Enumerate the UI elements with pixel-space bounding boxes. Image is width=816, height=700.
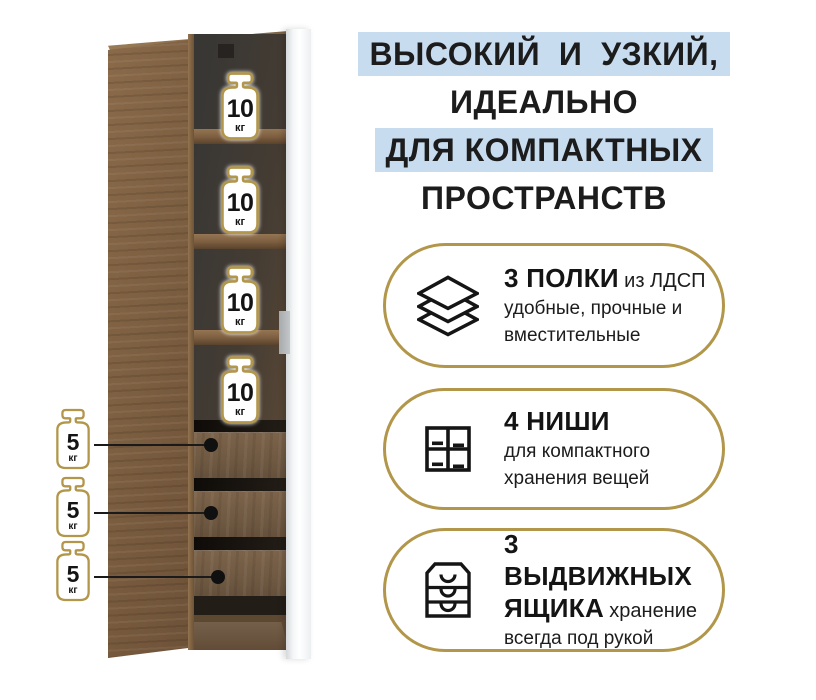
feature-note: из ЛДСП	[624, 270, 705, 292]
cabinet-base	[194, 622, 290, 650]
feature-description: всегда под рукой	[504, 628, 653, 649]
feature-card-shelves: 3 ПОЛКИ из ЛДСП удобные, прочные и вмест…	[383, 243, 725, 368]
badge-unit: кг	[212, 406, 268, 418]
drawer-gap	[194, 478, 290, 491]
shelf-load-badge: 10 кг	[212, 72, 268, 140]
headline-line: ДЛЯ КОМПАКТНЫХ	[356, 126, 732, 174]
callout-line	[94, 512, 212, 514]
drawer-front	[194, 550, 290, 597]
shelf	[194, 234, 290, 249]
feature-heading: 4 НИШИ	[504, 406, 610, 436]
badge-value: 10	[212, 189, 268, 218]
badge-value: 10	[212, 379, 268, 408]
niches-grid-icon	[416, 425, 480, 473]
headline-highlight: ВЫСОКИЙ И УЗКИЙ,	[358, 32, 729, 76]
callout-dot	[204, 438, 218, 452]
bottom-niche	[194, 596, 290, 622]
feature-text: 4 НИШИ для компактного хранения вещей	[504, 406, 706, 492]
badge-unit: кг	[212, 122, 268, 134]
badge-unit: кг	[212, 316, 268, 328]
feature-description: удобные, прочные и вместительные	[504, 295, 706, 349]
feature-heading: 3 ПОЛКИ	[504, 263, 619, 293]
drawers-chest-icon	[416, 561, 480, 619]
shelf-load-badge: 10 кг	[212, 266, 268, 334]
feature-text: 3 ПОЛКИ из ЛДСП удобные, прочные и вмест…	[504, 263, 706, 349]
feature-text: 3 ВЫДВИЖНЫХ ЯЩИКА хранение всегда под ру…	[504, 529, 706, 652]
badge-value: 10	[212, 289, 268, 318]
badge-unit: кг	[50, 585, 96, 596]
cabinet-side-panel	[108, 40, 188, 658]
callout-dot	[211, 570, 225, 584]
badge-unit: кг	[212, 216, 268, 228]
drawer-load-badge: 5 кг	[50, 476, 96, 538]
door-handle	[279, 311, 290, 354]
badge-value: 10	[212, 95, 268, 124]
badge-unit: кг	[50, 453, 96, 464]
shelf-load-badge: 10 кг	[212, 356, 268, 424]
mount-bracket	[218, 44, 234, 58]
feature-description: для компактного хранения вещей	[504, 438, 706, 492]
feature-card-niches: 4 НИШИ для компактного хранения вещей	[383, 388, 725, 510]
infographic-canvas: 10 кг 10 кг 10 кг 10 кг 5 кг 5 кг 5 кг В…	[0, 0, 816, 700]
feature-card-drawers: 3 ВЫДВИЖНЫХ ЯЩИКА хранение всегда под ру…	[383, 528, 725, 652]
headline-line: ИДЕАЛЬНО	[356, 78, 732, 126]
shelves-layers-icon	[416, 275, 480, 337]
callout-line	[94, 576, 218, 578]
callout-dot	[204, 506, 218, 520]
headline-line: ВЫСОКИЙ И УЗКИЙ,	[356, 30, 732, 78]
badge-unit: кг	[50, 521, 96, 532]
bottom-niche-floor	[194, 615, 290, 622]
shelf-load-badge: 10 кг	[212, 166, 268, 234]
badge-value: 5	[50, 429, 96, 456]
callout-line	[94, 444, 212, 446]
headline-line: ПРОСТРАНСТВ	[356, 174, 732, 222]
drawer-load-badge: 5 кг	[50, 540, 96, 602]
badge-value: 5	[50, 561, 96, 588]
feature-note: хранение	[609, 600, 697, 622]
drawer-gap	[194, 537, 290, 550]
headline-highlight: ДЛЯ КОМПАКТНЫХ	[375, 128, 714, 172]
drawer-load-badge: 5 кг	[50, 408, 96, 470]
badge-value: 5	[50, 497, 96, 524]
headline: ВЫСОКИЙ И УЗКИЙ, ИДЕАЛЬНО ДЛЯ КОМПАКТНЫХ…	[356, 30, 732, 222]
